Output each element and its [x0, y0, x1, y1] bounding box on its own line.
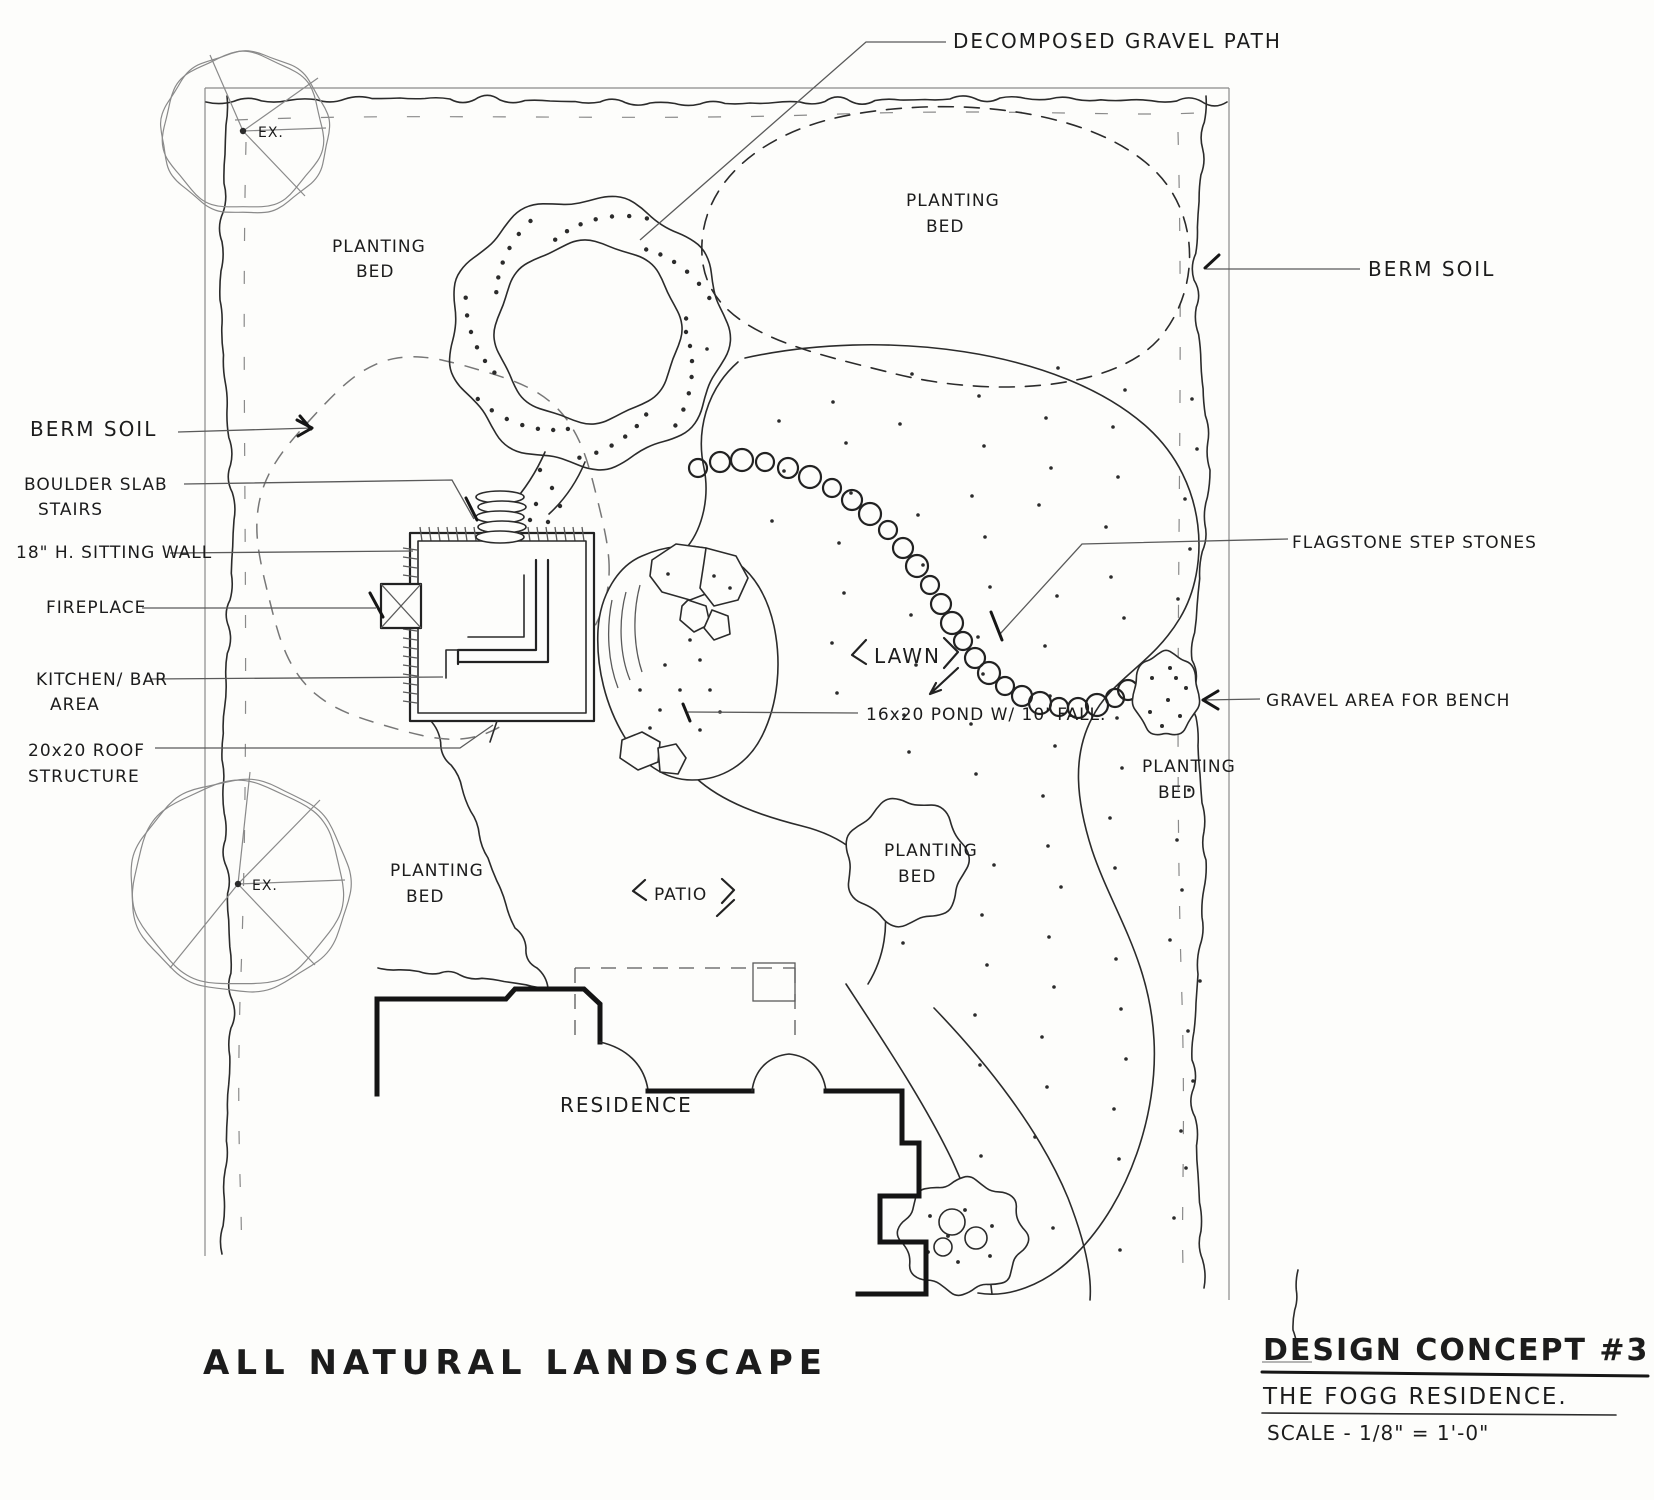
gravel-dot [684, 316, 688, 320]
lawn-dot [992, 863, 996, 867]
lawn-dot [1180, 888, 1184, 892]
tree-branch-line [238, 772, 250, 884]
gravel-dot [578, 222, 582, 226]
leader-flagstone [1000, 539, 1288, 634]
gravel-dot [658, 252, 662, 256]
lawn-dot [1043, 644, 1047, 648]
gravel-dot [469, 330, 473, 334]
planting-dot [956, 1260, 960, 1264]
planting-edge-top [206, 95, 1227, 106]
gravel-dot [644, 247, 648, 251]
gravel-dot [528, 219, 532, 223]
lawn-dot [1051, 1226, 1055, 1230]
lawn-dot [909, 613, 913, 617]
gravel-dot [684, 330, 688, 334]
lawn-dot [1104, 525, 1108, 529]
residence-dashed-overhang [575, 968, 795, 1040]
gravel-dot [475, 345, 479, 349]
lawn-dot [1191, 1079, 1195, 1083]
lawn-dot [976, 635, 980, 639]
lawn-dot [1037, 503, 1041, 507]
lawn-dot [837, 541, 841, 545]
leader-berm-soil-left [178, 428, 312, 432]
gravel-dot [465, 313, 469, 317]
lawn-dot [1056, 366, 1060, 370]
label-sitting-wall: 18" H. SITTING WALL [16, 543, 212, 563]
lawn-dot [1053, 744, 1057, 748]
arrow-tick-flagstone [991, 612, 1002, 640]
gravel-dot [496, 275, 500, 279]
flagstone-stone [823, 479, 841, 497]
lawn-dot [1118, 1248, 1122, 1252]
gravel-dot [534, 502, 538, 506]
gravel-dot [558, 504, 562, 508]
lawn-dot [1119, 1007, 1123, 1011]
gravel-dot [505, 417, 509, 421]
gravel-ring-outer-edge [450, 196, 731, 470]
pond-dot [663, 663, 667, 667]
gravel-dot [520, 423, 524, 427]
pond-dot [638, 688, 642, 692]
lawn-dot [973, 1013, 977, 1017]
gravel-dot [507, 246, 511, 250]
label-pond: 16x20 POND W/ 10' FALL. [866, 705, 1106, 725]
lawn-dot [770, 519, 774, 523]
gravel-neck-edge [549, 462, 585, 514]
gravel-bench-area [1132, 650, 1199, 734]
lawn-dot [1045, 1085, 1049, 1089]
label-berm-soil-left: BERM SOIL [30, 417, 157, 441]
concept-title: DESIGN CONCEPT #3 [1263, 1333, 1649, 1368]
planting-dot [946, 1234, 950, 1238]
leader-gravel-bench [1203, 699, 1260, 700]
stair-slab [476, 531, 524, 543]
label-residence: RESIDENCE [560, 1093, 693, 1117]
lawn-bracket-left [852, 640, 866, 664]
label-berm-soil-right: BERM SOIL [1368, 257, 1495, 281]
lawn-dot [835, 691, 839, 695]
gravel-dot [490, 408, 494, 412]
flagstone-stone [954, 632, 972, 650]
lawn-dot [988, 585, 992, 589]
tree-branch-line [238, 800, 320, 884]
lawn-dot [1198, 979, 1202, 983]
lawn-dot [1047, 935, 1051, 939]
lawn-dot [1117, 1157, 1121, 1161]
annotation-labels: DECOMPOSED GRAVEL PATH PLANTING BED PLAN… [16, 29, 1537, 1117]
gravel-dot [687, 391, 691, 395]
flagstone-stone [756, 453, 774, 471]
label-patio: PATIO [654, 885, 707, 905]
leader-roof-structure [155, 725, 493, 748]
lawn-dot [974, 772, 978, 776]
lawn-dot [1116, 475, 1120, 479]
lawn-dot [985, 963, 989, 967]
pond-dot [678, 688, 682, 692]
patio-bracket-left [633, 880, 646, 900]
gravel-dot [645, 216, 649, 220]
tree-branch-line [243, 78, 318, 131]
bench-dot [1174, 676, 1178, 680]
planting-edge-left [219, 96, 234, 1254]
planting-dot [988, 1254, 992, 1258]
gravel-dot [594, 451, 598, 455]
gravel-dot [464, 296, 468, 300]
planting-dash-accent-top [235, 112, 1214, 120]
bench-dot [1150, 676, 1154, 680]
lawn-texture-dots [705, 347, 1202, 1252]
pond-dot [688, 638, 692, 642]
lawn-dot [1122, 616, 1126, 620]
gravel-dot [688, 344, 692, 348]
tree-trunk-dot [235, 881, 241, 887]
label-gravel-path: DECOMPOSED GRAVEL PATH [953, 29, 1282, 53]
lawn-dot [844, 441, 848, 445]
project-name: THE FOGG RESIDENCE. [1262, 1384, 1568, 1410]
lawn-dot [1055, 594, 1059, 598]
gravel-dot [492, 370, 496, 374]
label-boulder-stairs: STAIRS [38, 500, 103, 520]
gravel-ring-inner-edge [494, 240, 682, 424]
bench-dot [1148, 710, 1152, 714]
planting-dot [963, 1208, 967, 1212]
arrow-tick-berm-right [1205, 255, 1219, 268]
gravel-dot [528, 518, 532, 522]
lawn-dot [901, 941, 905, 945]
pond-dot [708, 688, 712, 692]
lawn-dot [1052, 985, 1056, 989]
project-name-underline [1262, 1413, 1616, 1415]
lawn-dot [782, 469, 786, 473]
gravel-dot [635, 424, 639, 428]
middle-planting-blob [846, 799, 969, 927]
gravel-dot [673, 423, 677, 427]
gravel-dot [536, 427, 540, 431]
gravel-dot [476, 397, 480, 401]
lawn-dot [849, 491, 853, 495]
lawn-dot [979, 1154, 983, 1158]
flagstone-stone [710, 452, 730, 472]
lawn-dot [1113, 866, 1117, 870]
lawn-dot [1175, 838, 1179, 842]
flagstone-stone [859, 503, 881, 525]
lawn-dot [977, 394, 981, 398]
lawn-dot [830, 641, 834, 645]
roof-structure [381, 491, 594, 742]
gravel-dot [594, 217, 598, 221]
lawn-dot [970, 494, 974, 498]
patio-bracket-right-arrow [717, 879, 734, 916]
flagstone-stone [941, 612, 963, 634]
tree-branch-line [238, 884, 315, 965]
residence-small-square [753, 963, 795, 1001]
lawn-dot [1109, 575, 1113, 579]
lawn-dot [1190, 397, 1194, 401]
planting-edge-bottom-left [378, 968, 548, 988]
label-planting-bed: PLANTING [1142, 757, 1236, 777]
lawn-dot [1040, 1035, 1044, 1039]
concept-title-underline [1262, 1372, 1648, 1376]
lawn-dot [777, 419, 781, 423]
lawn-dot [1046, 844, 1050, 848]
arrowhead-berm-left [297, 416, 312, 436]
flagstone-stone [931, 594, 951, 614]
lawn-dot [910, 372, 914, 376]
gravel-dot [566, 427, 570, 431]
bench-dot [1168, 666, 1172, 670]
existing-tree-label: EX. [258, 125, 284, 141]
leader-kitchen-bar [150, 677, 443, 679]
gravel-texture-dots [464, 214, 712, 524]
planting-blob-outline [846, 799, 969, 927]
lawn-dot [1123, 388, 1127, 392]
lawn-dot [1195, 447, 1199, 451]
bench-dot [1184, 686, 1188, 690]
lawn-dot [1044, 416, 1048, 420]
label-kitchen-bar: KITCHEN/ BAR [36, 670, 168, 690]
gravel-dot [494, 290, 498, 294]
label-planting-bed: BED [1158, 783, 1197, 803]
gravel-dot [685, 270, 689, 274]
lawn-dot [916, 513, 920, 517]
berm-soil-dashed-blob [702, 107, 1190, 387]
residence-wall-left-wing [377, 989, 600, 1094]
lawn-dot [1033, 1135, 1037, 1139]
pond-dot [648, 726, 652, 730]
lawn-dot [983, 535, 987, 539]
gravel-dot [610, 214, 614, 218]
label-planting-bed: BED [926, 217, 965, 237]
label-planting-bed: BED [406, 887, 445, 907]
planting-dot [990, 1224, 994, 1228]
tree-trunk-dot [240, 128, 246, 134]
label-gravel-bench: GRAVEL AREA FOR BENCH [1266, 691, 1510, 711]
flagstone-stone [799, 466, 821, 488]
drawing-title: ALL NATURAL LANDSCAPE [203, 1343, 828, 1383]
gravel-dot [689, 375, 693, 379]
lawn-dot [1172, 1216, 1176, 1220]
lawn-dot [1112, 1107, 1116, 1111]
lawn-dot [1179, 1129, 1183, 1133]
fireplace [381, 584, 421, 628]
existing-tree-label: EX. [252, 878, 278, 894]
pond-dot [666, 572, 670, 576]
pond [598, 544, 778, 780]
tree-branch-spokes [170, 772, 345, 968]
lawn-dot [842, 591, 846, 595]
label-planting-bed: BED [356, 262, 395, 282]
flagstone-stone [906, 555, 928, 577]
flagstone-stone [778, 458, 798, 478]
lawn-dot [981, 672, 985, 676]
label-planting-bed: BED [898, 867, 937, 887]
label-flagstone: FLAGSTONE STEP STONES [1292, 533, 1537, 553]
landscape-plan-drawing: EX. EX. [0, 0, 1654, 1500]
planting-dash-accent-left [239, 142, 246, 1250]
boulder-slab-stairs [476, 491, 526, 543]
label-roof-structure: STRUCTURE [28, 767, 140, 787]
lawn-dot [921, 563, 925, 567]
gravel-dot [483, 359, 487, 363]
lawn-dot [1041, 794, 1045, 798]
bench-dot [1160, 724, 1164, 728]
lawn-dot [1124, 1057, 1128, 1061]
gravel-dot [609, 443, 613, 447]
gravel-dot [644, 412, 648, 416]
residence-door-swing [600, 1042, 648, 1090]
sheet-titles: ALL NATURAL LANDSCAPE DESIGN CONCEPT #3 … [203, 1333, 1649, 1445]
gravel-dot [672, 260, 676, 264]
bench-dot [1166, 698, 1170, 702]
gravel-dot [517, 232, 521, 236]
pond-dot [658, 708, 662, 712]
gravel-dot [538, 468, 542, 472]
gravel-dot [697, 282, 701, 286]
gravel-dot [565, 229, 569, 233]
lawn-dot [898, 422, 902, 426]
pond-dot [712, 574, 716, 578]
flagstone-stone [921, 576, 939, 594]
leader-gravel-path [640, 42, 946, 240]
lawn-dot [705, 347, 709, 351]
pond-dot [698, 658, 702, 662]
label-boulder-stairs: BOULDER SLAB [24, 475, 168, 495]
lawn-dot [1184, 1166, 1188, 1170]
lawn-dot [1168, 938, 1172, 942]
gravel-dot [550, 486, 554, 490]
flagstone-stone [893, 538, 913, 558]
lawn-dot [1108, 816, 1112, 820]
lawn-dot [1114, 957, 1118, 961]
label-fireplace: FIREPLACE [46, 598, 146, 618]
label-lawn: LAWN [874, 644, 941, 668]
gravel-dot [551, 428, 555, 432]
gravel-dot [623, 434, 627, 438]
gravel-dot [553, 238, 557, 242]
gravel-dot [681, 407, 685, 411]
tree-branch-line [170, 884, 238, 968]
gravel-dot [707, 296, 711, 300]
planting-edge-patio-left [430, 720, 548, 988]
gravel-dot [627, 214, 631, 218]
residence-french-doors [752, 1054, 826, 1091]
lawn-dot [1049, 466, 1053, 470]
flagstone-stone [996, 677, 1014, 695]
gravel-path-ring [450, 196, 731, 524]
bench-gravel-outline [1132, 650, 1199, 734]
lawn-dot [980, 913, 984, 917]
gravel-dot [546, 520, 550, 524]
label-planting-bed: PLANTING [332, 237, 426, 257]
gravel-dot [690, 359, 694, 363]
lawn-dot [1188, 547, 1192, 551]
label-planting-bed: PLANTING [906, 191, 1000, 211]
roof-structure-outer [410, 533, 594, 721]
lawn-dot [1120, 766, 1124, 770]
label-roof-structure: 20x20 ROOF [28, 741, 145, 761]
flagstone-stone [731, 449, 753, 471]
pond-dot [728, 586, 732, 590]
lawn-dot [1115, 716, 1119, 720]
pond-dot [698, 728, 702, 732]
label-planting-bed: PLANTING [884, 841, 978, 861]
gravel-dot [577, 456, 581, 460]
flagstone-stone [879, 521, 897, 539]
scale-note: SCALE - 1/8" = 1'-0" [1267, 1421, 1489, 1445]
label-kitchen-bar: AREA [50, 695, 100, 715]
planting-dot [928, 1214, 932, 1218]
tree-branch-line [243, 128, 326, 131]
lawn-dot [831, 400, 835, 404]
bench-dot [1178, 714, 1182, 718]
lawn-dot [1186, 1029, 1190, 1033]
label-planting-bed: PLANTING [390, 861, 484, 881]
gravel-dot [501, 260, 505, 264]
lawn-dot [982, 444, 986, 448]
lawn-dot [1183, 497, 1187, 501]
lawn-dot [1176, 597, 1180, 601]
lawn-dot [1111, 425, 1115, 429]
leader-boulder-stairs [184, 480, 474, 519]
landscape-plan-sheet: EX. EX. [0, 0, 1654, 1500]
residence [377, 963, 926, 1294]
lawn-dot [1059, 885, 1063, 889]
lawn-dot [978, 1063, 982, 1067]
lawn-dot [907, 750, 911, 754]
